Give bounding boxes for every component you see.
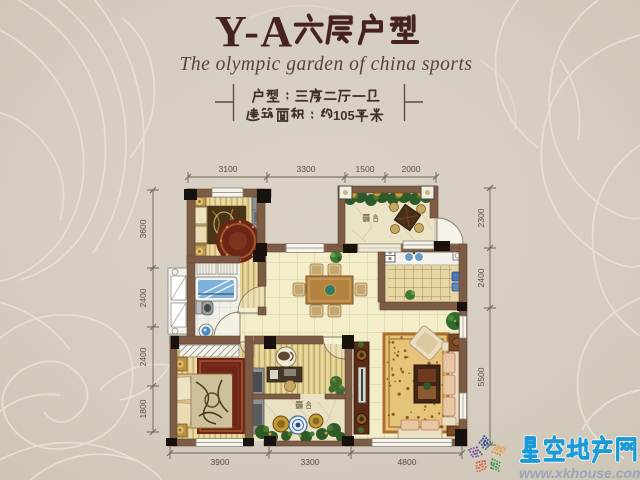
svg-text:Y-A: Y-A [215,7,294,56]
svg-text:1500: 1500 [356,164,375,174]
svg-text:www.xkhouse.com: www.xkhouse.com [519,465,640,480]
svg-text:3300: 3300 [297,164,316,174]
svg-text:2400: 2400 [138,347,148,366]
svg-text:105: 105 [333,108,355,123]
svg-text:3900: 3900 [211,457,230,467]
svg-text:2400: 2400 [476,268,486,287]
svg-text:2000: 2000 [402,164,421,174]
svg-text:3300: 3300 [301,457,320,467]
svg-text:5500: 5500 [476,367,486,386]
svg-text:2400: 2400 [138,288,148,307]
svg-text:The olympic garden of china sp: The olympic garden of china sports [179,54,472,75]
svg-text:3600: 3600 [138,219,148,238]
svg-text:3100: 3100 [219,164,238,174]
svg-text:2300: 2300 [476,208,486,227]
svg-text:1800: 1800 [138,399,148,418]
svg-text:4800: 4800 [398,457,417,467]
